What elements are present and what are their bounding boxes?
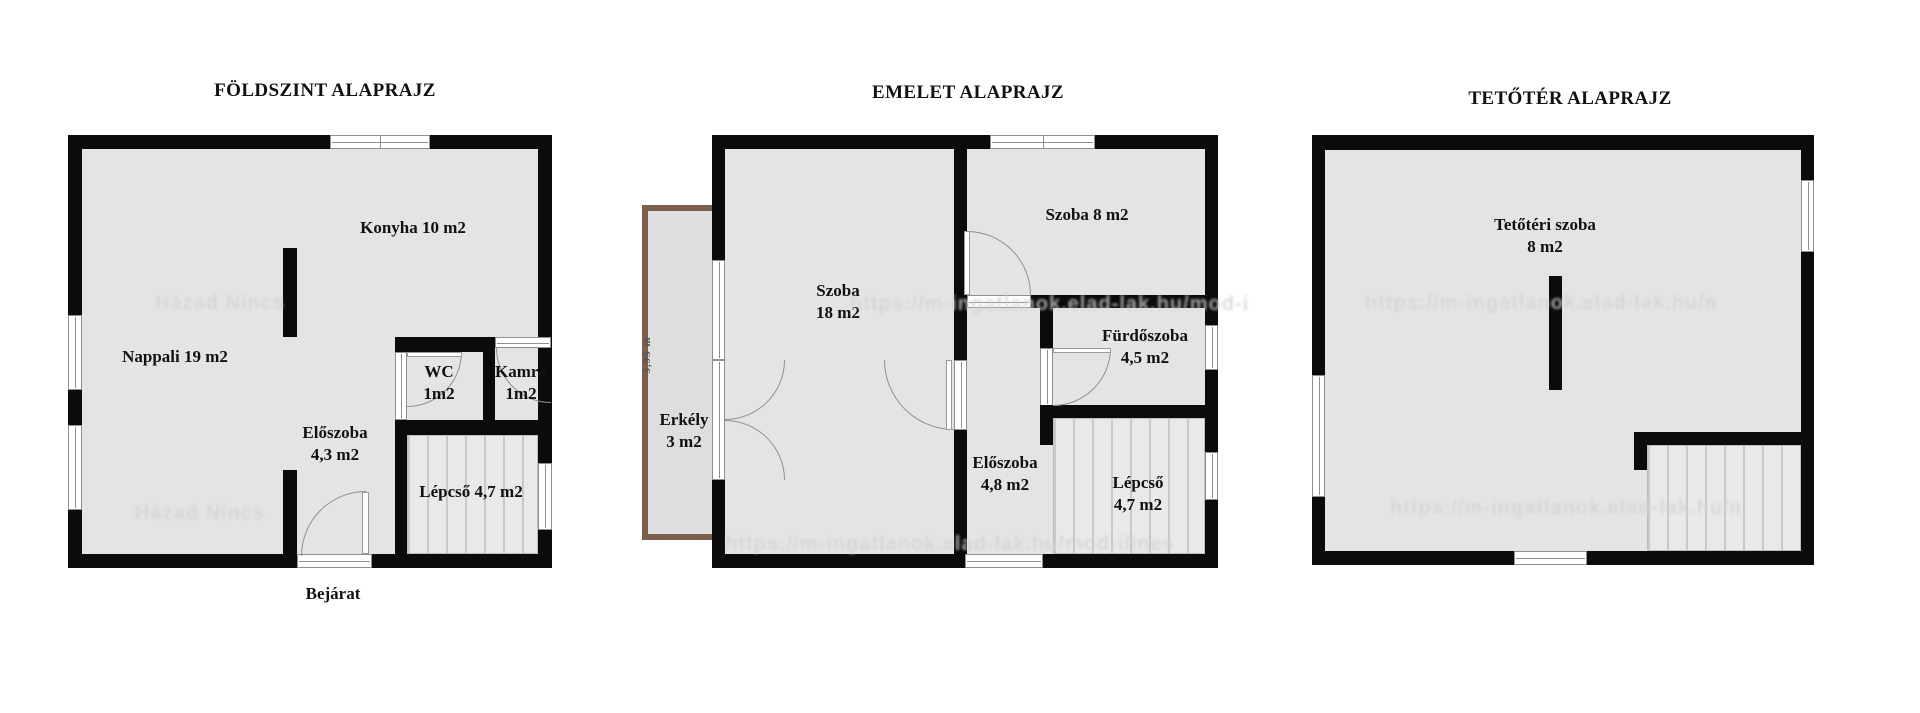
watermark: Házad Nincs [50, 502, 350, 525]
watermark: Házad Nincs [60, 292, 380, 315]
wall-segment [1634, 432, 1814, 445]
wall-segment [1801, 150, 1814, 180]
wall-segment [1634, 445, 1647, 470]
wall-segment [1587, 551, 1814, 565]
attic-title: TETŐTÉR ALAPRAJZ [1360, 88, 1780, 110]
wall-segment [1312, 135, 1814, 150]
window [1801, 180, 1814, 252]
watermark: https://m-ingatlanok.elad-lak.hu/mod-ili… [1390, 497, 1740, 520]
watermark: https://m-ingatlanok.elad-lak.hu/mod-ili… [850, 293, 1250, 316]
window [1514, 551, 1587, 565]
window [1312, 375, 1325, 497]
wall-segment [1312, 150, 1325, 375]
attic-floor-plan: TETŐTÉR ALAPRAJZ Tetőtéri szoba 8 m2 [0, 0, 1920, 713]
wall-segment [1312, 551, 1514, 565]
floorplan-sheet: FÖLDSZINT ALAPRAJZ [0, 0, 1920, 713]
room-label-tetoteri-szoba: Tetőtéri szoba 8 m2 [1494, 214, 1596, 258]
wall-segment [1801, 252, 1814, 565]
watermark: https://m-ingatlanok.elad-lak.hu/mod-ili… [710, 533, 1190, 556]
watermark: https://m-ingatlanok.elad-lak.hu/mod-ili… [1365, 292, 1715, 315]
